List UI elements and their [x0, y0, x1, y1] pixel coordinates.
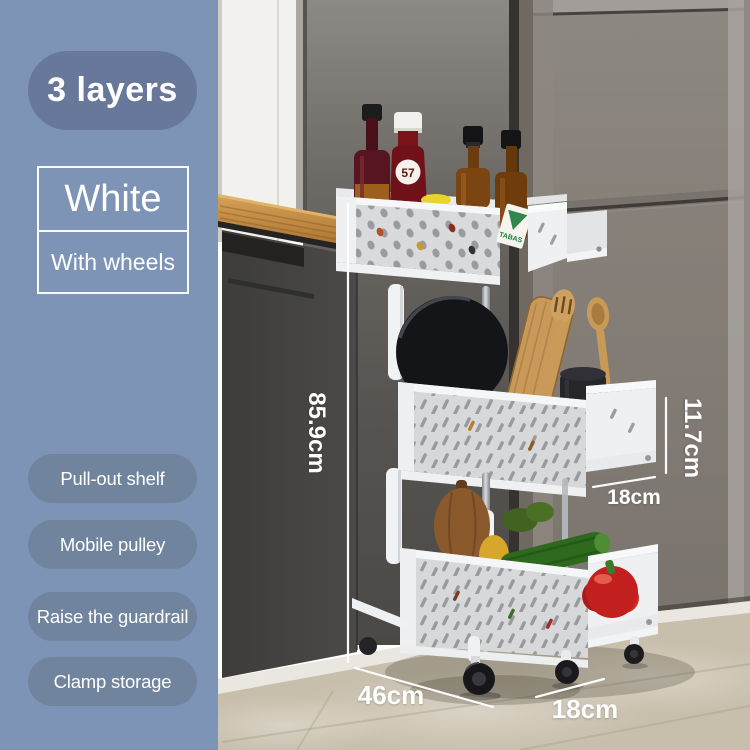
- variant-box: White With wheels: [37, 166, 189, 294]
- kitchen-cabinet: [222, 230, 357, 678]
- middle-basket-front: [398, 382, 586, 488]
- feature-pill-clamp-storage: Clamp storage: [28, 657, 197, 706]
- layers-badge: 3 layers: [28, 51, 197, 130]
- ketchup-label: 57: [401, 166, 415, 180]
- middle-basket-end: [586, 380, 656, 472]
- dimension-total-height: 85.9cm: [302, 387, 330, 479]
- dimension-tier-depth: 18cm: [594, 486, 674, 510]
- ketchup-bottle: 57: [390, 112, 427, 205]
- feature-pill-pull-out-shelf: Pull-out shelf: [28, 454, 197, 503]
- feature-pill-mobile-pulley: Mobile pulley: [28, 520, 197, 569]
- feature-pill-raise-guardrail: Raise the guardrail: [28, 592, 197, 641]
- dimension-tier-height: 11.7cm: [678, 392, 706, 484]
- top-basket-front: [336, 196, 500, 276]
- product-showcase: 57: [0, 0, 750, 750]
- variant-wheels-label: With wheels: [39, 232, 187, 292]
- dimension-floor-depth: 18cm: [540, 694, 630, 725]
- variant-color-label: White: [39, 168, 187, 232]
- dimension-floor-length: 46cm: [346, 680, 436, 711]
